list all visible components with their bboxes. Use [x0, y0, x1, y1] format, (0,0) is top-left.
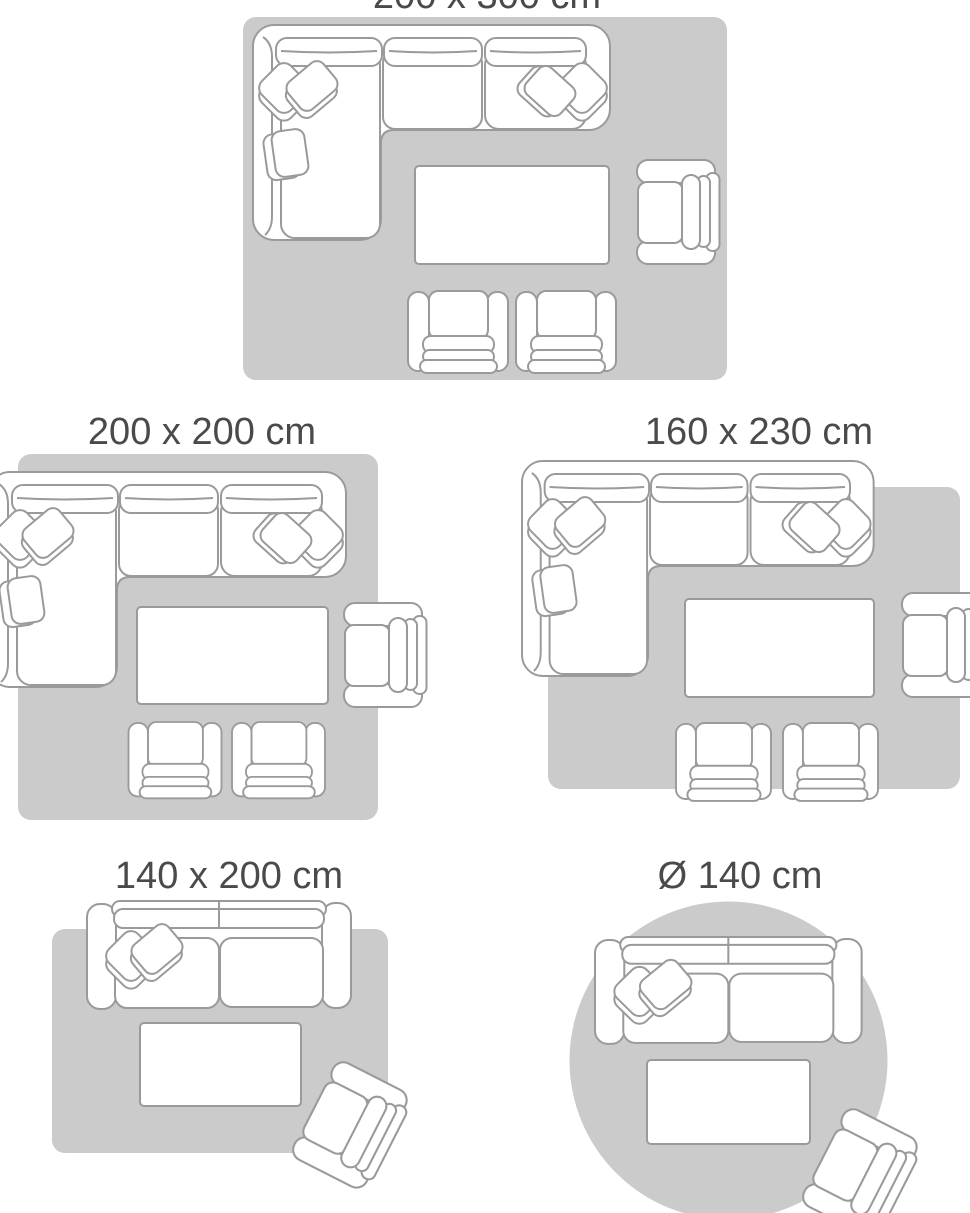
svg-text:160 x 230 cm: 160 x 230 cm — [645, 411, 873, 453]
svg-text:200 x 200 cm: 200 x 200 cm — [88, 411, 316, 453]
svg-text:Ø 140 cm: Ø 140 cm — [658, 855, 823, 897]
svg-text:140 x 200 cm: 140 x 200 cm — [115, 855, 343, 897]
svg-text:200 x 300 cm: 200 x 300 cm — [373, 0, 601, 17]
